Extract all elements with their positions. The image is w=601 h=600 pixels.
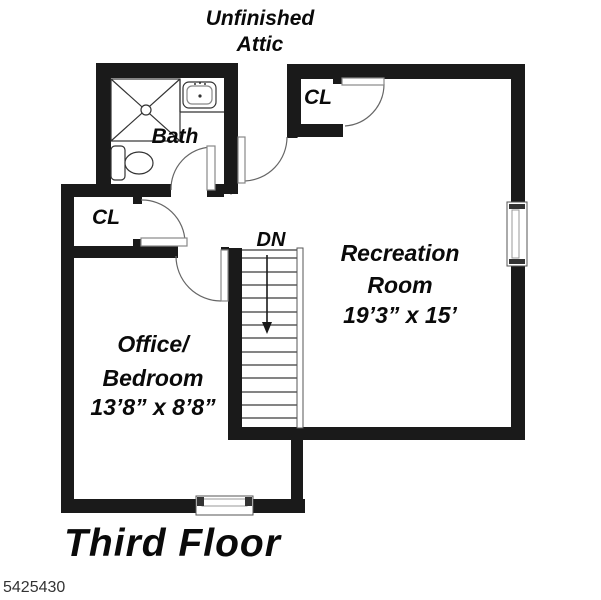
door-swing-icon [176, 256, 221, 301]
door-swing-icon [345, 84, 384, 126]
stairs [242, 248, 303, 428]
attic-label-line2: Attic [158, 32, 362, 58]
sink-icon [183, 82, 216, 108]
window-bottom [196, 496, 253, 515]
door-leaf [141, 238, 187, 246]
recreation-room-dimensions: 19’3” x 15’ [308, 302, 492, 330]
stairs-down-arrow-icon [262, 255, 272, 334]
door-swing-icon [245, 137, 287, 181]
door-leaf [238, 137, 245, 183]
stair-treads [242, 258, 297, 418]
jamb-closet-right [333, 77, 342, 84]
window-jamb-right [245, 497, 252, 506]
stairs-down-label: DN [246, 228, 296, 252]
office-bedroom-label-line1: Office/ [58, 327, 248, 361]
closet-left-door [141, 200, 187, 246]
wall-right-lower [511, 266, 525, 440]
office-bedroom-dimensions: 13’8” x 8’8” [58, 394, 248, 422]
wall-right-upper [511, 64, 525, 203]
door-swing-icon [141, 200, 185, 242]
door-swing-icon [171, 147, 211, 190]
attic-label-line1: Unfinished [158, 6, 362, 32]
wall-bath-top [96, 63, 238, 78]
wall-bath-left [96, 63, 111, 197]
listing-id: 5425430 [3, 578, 123, 597]
office-bedroom-label: Office/ Bedroom [58, 327, 248, 395]
closet-left-label: CL [83, 205, 129, 230]
office-door [176, 250, 228, 301]
recreation-room-label-line1: Recreation [308, 237, 492, 269]
bath-door [171, 146, 215, 190]
bath-label: Bath [139, 124, 211, 149]
floor-plan: Unfinished Attic Bath CL CL DN Recreatio… [0, 0, 601, 600]
window-right [507, 202, 527, 266]
wall-office-bottom-left [61, 499, 196, 513]
office-bedroom-label-line2: Bedroom [58, 361, 248, 395]
closet-right-door [342, 78, 384, 126]
attic-door [238, 137, 287, 183]
floor-title: Third Floor [45, 521, 300, 568]
door-leaf [221, 250, 228, 301]
stair-railing [297, 248, 303, 428]
window-glass [512, 210, 519, 258]
closet-upper-right-label: CL [295, 85, 341, 110]
window-sash-bottom [509, 259, 525, 264]
window-glass [202, 499, 247, 506]
wall-office-bottom-right [252, 499, 305, 513]
attic-label: Unfinished Attic [158, 6, 362, 58]
door-leaf [342, 78, 384, 85]
recreation-room-label-line2: Room [308, 269, 492, 301]
wall-top-right [287, 64, 525, 79]
wall-closet-left-bottom [61, 246, 178, 258]
window-sash-top [509, 204, 525, 209]
toilet-icon [111, 146, 153, 180]
wall-recroom-bottom [228, 427, 525, 440]
jamb-closet-left-top [133, 197, 142, 204]
wall-bath-bottom [61, 184, 171, 197]
recreation-room-label: Recreation Room [308, 237, 492, 301]
door-leaf [207, 146, 215, 190]
window-jamb-left [197, 497, 204, 506]
